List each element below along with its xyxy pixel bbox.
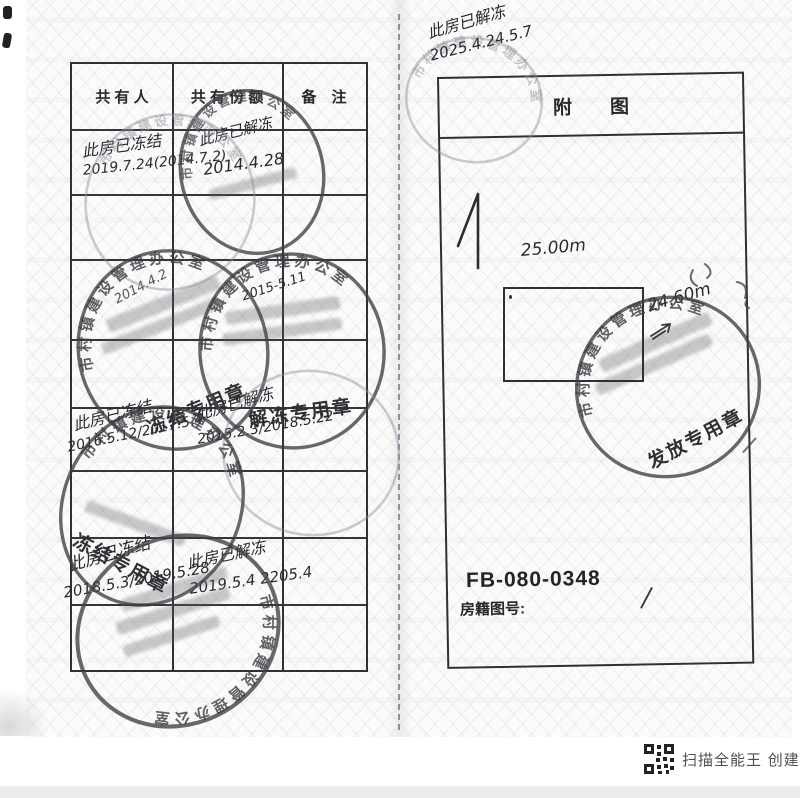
scan-bottom-edge [0,786,800,798]
qr-code-icon [644,744,674,774]
north-arrow-icon [448,188,492,274]
scanner-watermark: 扫描全能王 创建 [644,744,800,774]
map-number-label: 房籍图号: [460,597,525,619]
registration-code: FB-080-0348 [466,567,601,593]
scan-corner-shadow [0,688,48,736]
scan-artifact-mark [3,6,12,19]
pen-dot [509,295,512,299]
watermark-text: 扫描全能王 创建 [682,749,800,770]
svg-text:市村镇建设管理办公室: 市村镇建设管理办公室 [186,243,362,355]
scan-artifact-mark [2,32,12,48]
